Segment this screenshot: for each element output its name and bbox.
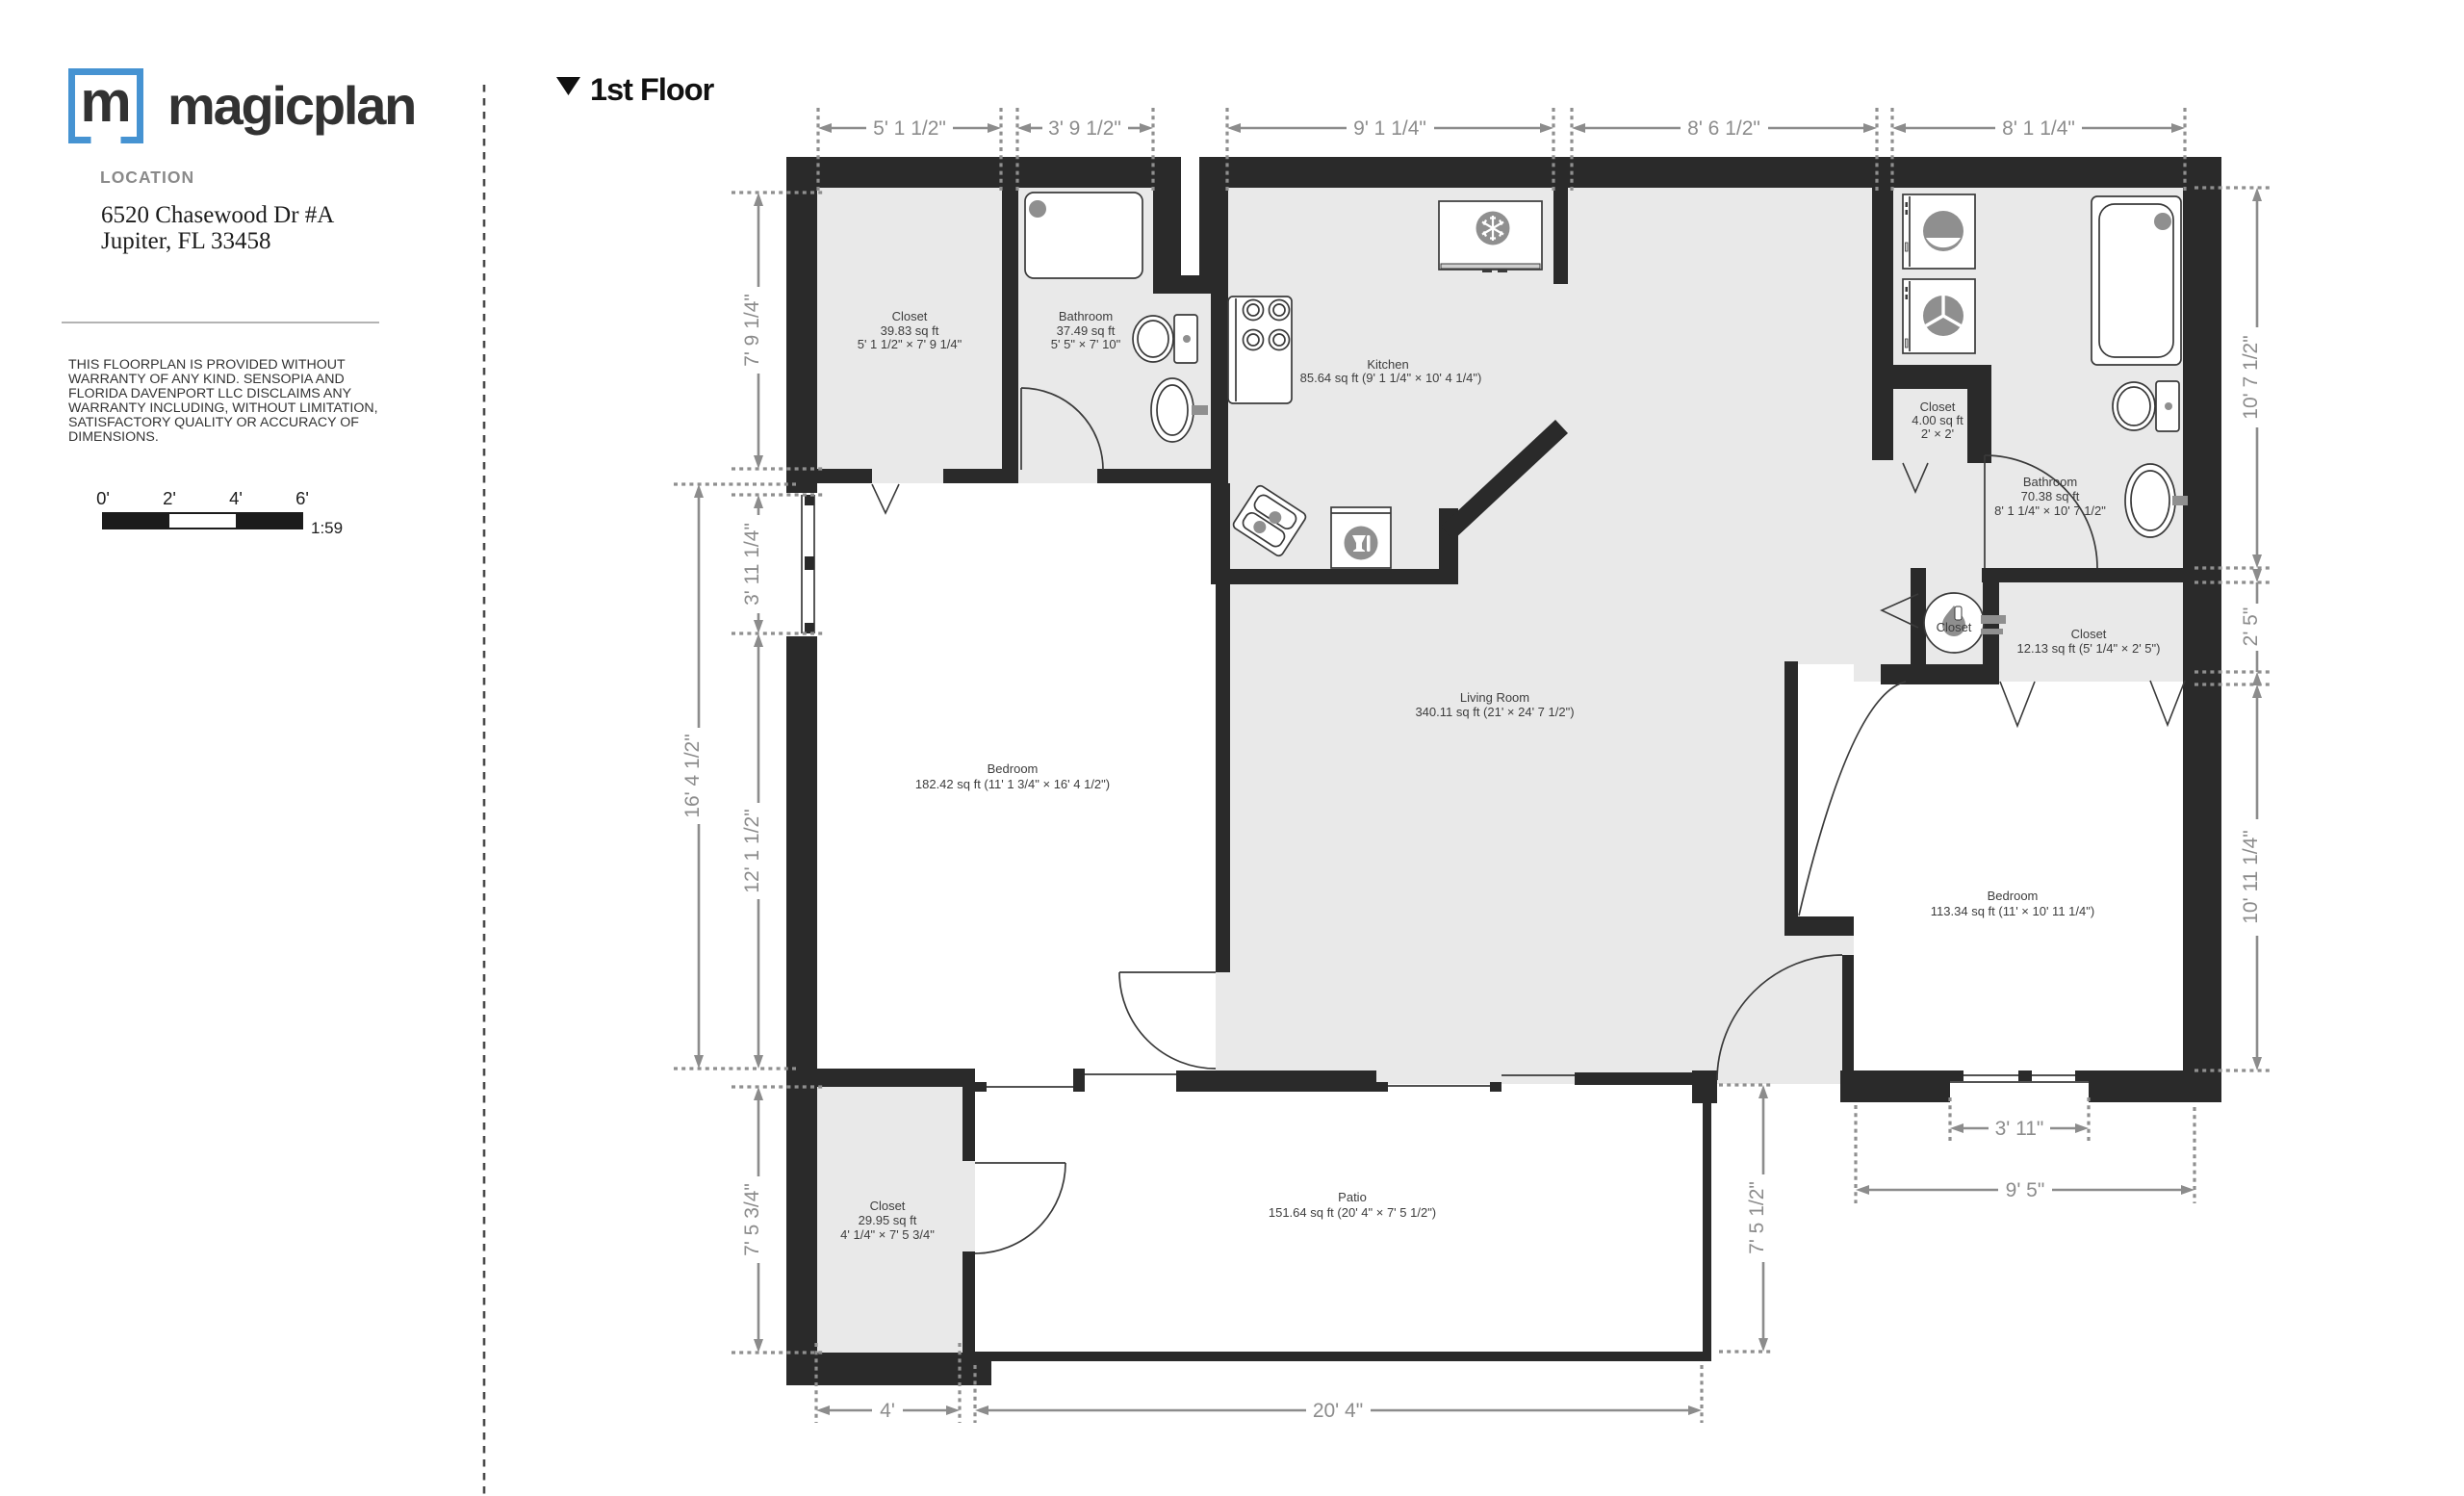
svg-text:39.83 sq ft: 39.83 sq ft <box>881 323 939 338</box>
svg-text:7' 5 1/2": 7' 5 1/2" <box>1746 1181 1768 1254</box>
svg-text:6': 6' <box>295 488 309 508</box>
svg-text:7' 5 3/4": 7' 5 3/4" <box>741 1183 763 1256</box>
svg-text:Bedroom: Bedroom <box>988 761 1039 776</box>
svg-text:SATISFACTORY QUALITY OR ACCURA: SATISFACTORY QUALITY OR ACCURACY OF <box>68 415 359 430</box>
svg-text:2' 5": 2' 5" <box>2240 607 2262 647</box>
svg-text:m: m <box>80 69 131 134</box>
svg-text:182.42 sq ft (11' 1 3/4" × 16': 182.42 sq ft (11' 1 3/4" × 16' 4 1/2") <box>915 777 1110 791</box>
svg-text:THIS FLOORPLAN IS PROVIDED WIT: THIS FLOORPLAN IS PROVIDED WITHOUT <box>68 357 346 373</box>
svg-text:10' 11 1/4": 10' 11 1/4" <box>2240 830 2262 923</box>
svg-text:4': 4' <box>880 1400 895 1422</box>
svg-text:WARRANTY INCLUDING, WITHOUT LI: WARRANTY INCLUDING, WITHOUT LIMITATION, <box>68 400 378 416</box>
svg-text:4': 4' <box>229 488 243 508</box>
svg-text:20' 4": 20' 4" <box>1313 1400 1363 1422</box>
svg-text:4' 1/4" × 7' 5 3/4": 4' 1/4" × 7' 5 3/4" <box>840 1227 935 1242</box>
svg-text:85.64 sq ft (9' 1 1/4" × 10' 4: 85.64 sq ft (9' 1 1/4" × 10' 4 1/4") <box>1300 371 1482 385</box>
svg-text:10' 7 1/2": 10' 7 1/2" <box>2240 335 2262 419</box>
svg-text:Kitchen: Kitchen <box>1367 357 1408 372</box>
svg-text:Closet: Closet <box>870 1199 906 1213</box>
svg-text:113.34 sq ft (11' × 10' 11 1/4: 113.34 sq ft (11' × 10' 11 1/4") <box>1931 904 2094 918</box>
svg-text:magicplan: magicplan <box>167 75 415 136</box>
svg-text:8' 1 1/4": 8' 1 1/4" <box>2002 117 2075 140</box>
svg-text:2': 2' <box>163 488 176 508</box>
svg-text:12' 1 1/2": 12' 1 1/2" <box>741 809 763 892</box>
svg-text:16' 4 1/2": 16' 4 1/2" <box>681 734 704 817</box>
svg-text:3' 11": 3' 11" <box>1995 1118 2044 1140</box>
svg-text:4.00 sq ft: 4.00 sq ft <box>1912 413 1963 427</box>
svg-text:Jupiter, FL 33458: Jupiter, FL 33458 <box>101 228 271 254</box>
svg-text:Patio: Patio <box>1338 1190 1367 1204</box>
svg-text:8' 6 1/2": 8' 6 1/2" <box>1687 117 1760 140</box>
svg-text:DIMENSIONS.: DIMENSIONS. <box>68 429 159 445</box>
svg-text:9' 1 1/4": 9' 1 1/4" <box>1353 117 1426 140</box>
svg-text:Closet: Closet <box>1937 620 1972 634</box>
svg-text:0': 0' <box>96 488 110 508</box>
svg-text:7' 9 1/4": 7' 9 1/4" <box>741 294 763 367</box>
svg-text:Closet: Closet <box>892 309 928 323</box>
svg-text:70.38 sq ft: 70.38 sq ft <box>2021 489 2080 503</box>
svg-text:Living Room: Living Room <box>1460 690 1529 705</box>
svg-text:151.64 sq ft (20' 4" × 7' 5 1/: 151.64 sq ft (20' 4" × 7' 5 1/2") <box>1269 1205 1436 1220</box>
svg-text:29.95 sq ft: 29.95 sq ft <box>859 1213 917 1227</box>
svg-text:37.49 sq ft: 37.49 sq ft <box>1057 323 1116 338</box>
svg-text:9' 5": 9' 5" <box>2006 1179 2045 1201</box>
svg-text:Closet: Closet <box>2071 627 2107 641</box>
svg-text:5' 5" × 7' 10": 5' 5" × 7' 10" <box>1051 337 1121 351</box>
svg-text:2' × 2': 2' × 2' <box>1921 426 1954 441</box>
svg-text:Bedroom: Bedroom <box>1988 889 2039 903</box>
svg-text:FLORIDA DAVENPORT LLC DISCLAIM: FLORIDA DAVENPORT LLC DISCLAIMS ANY <box>68 386 352 401</box>
svg-text:12.13 sq ft (5' 1/4" × 2' 5"): 12.13 sq ft (5' 1/4" × 2' 5") <box>2017 641 2161 656</box>
svg-text:8' 1 1/4" × 10' 7 1/2": 8' 1 1/4" × 10' 7 1/2" <box>1994 503 2106 518</box>
svg-text:Closet: Closet <box>1920 400 1956 414</box>
svg-text:5' 1 1/2": 5' 1 1/2" <box>873 117 946 140</box>
svg-text:6520 Chasewood Dr #A: 6520 Chasewood Dr #A <box>101 202 334 228</box>
svg-text:WARRANTY OF ANY KIND. SENSOPIA: WARRANTY OF ANY KIND. SENSOPIA AND <box>68 372 345 387</box>
svg-text:5' 1 1/2" × 7' 9 1/4": 5' 1 1/2" × 7' 9 1/4" <box>858 337 962 351</box>
svg-text:3' 9 1/2": 3' 9 1/2" <box>1048 117 1121 140</box>
svg-text:LOCATION: LOCATION <box>100 168 194 187</box>
svg-text:Bathroom: Bathroom <box>1059 309 1113 323</box>
svg-text:340.11 sq ft (21' × 24' 7 1/2": 340.11 sq ft (21' × 24' 7 1/2") <box>1415 705 1574 719</box>
svg-text:Bathroom: Bathroom <box>2023 475 2077 489</box>
svg-text:1st Floor: 1st Floor <box>590 72 715 107</box>
svg-text:3' 11 1/4": 3' 11 1/4" <box>741 523 763 606</box>
svg-text:1:59: 1:59 <box>311 519 343 537</box>
